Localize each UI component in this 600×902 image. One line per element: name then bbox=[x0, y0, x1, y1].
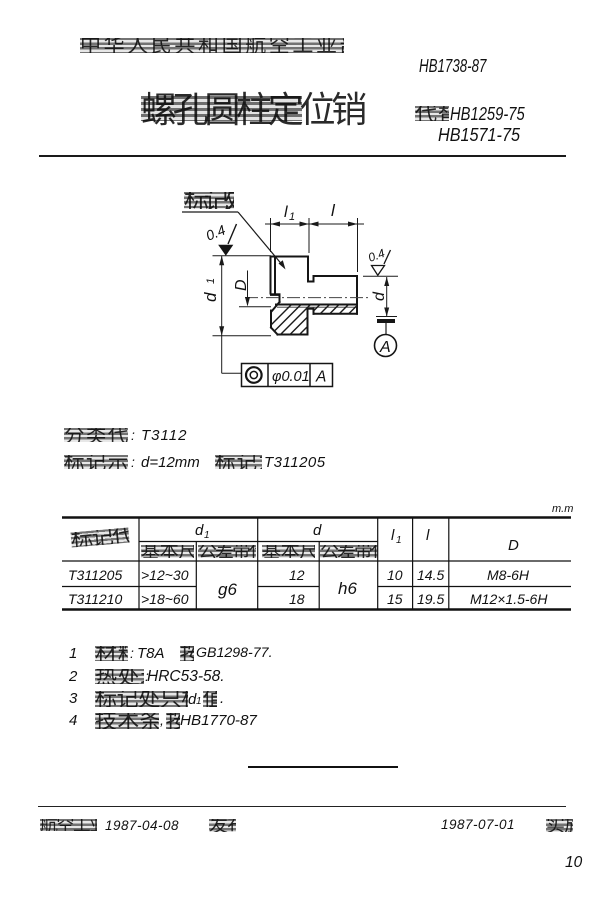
svg-text:g6: g6 bbox=[218, 580, 237, 599]
svg-text:0.4: 0.4 bbox=[366, 246, 387, 265]
svg-text:0.4: 0.4 bbox=[204, 222, 228, 244]
svg-text:l: l bbox=[426, 527, 430, 544]
svg-text:1: 1 bbox=[289, 211, 295, 223]
svg-text:d: d bbox=[195, 522, 204, 539]
svg-text:l: l bbox=[331, 201, 336, 220]
svg-text:d: d bbox=[201, 292, 220, 302]
svg-text:14.5: 14.5 bbox=[417, 567, 444, 583]
svg-text:>12~30: >12~30 bbox=[141, 567, 189, 583]
svg-text:A: A bbox=[379, 339, 391, 356]
svg-text:D: D bbox=[508, 537, 519, 554]
svg-text:1: 1 bbox=[204, 530, 210, 541]
svg-text:l: l bbox=[391, 527, 395, 544]
svg-text:T311205: T311205 bbox=[68, 567, 122, 583]
svg-text:d: d bbox=[313, 522, 322, 539]
svg-text:M12×1.5-6H: M12×1.5-6H bbox=[470, 591, 548, 607]
svg-text:M8-6H: M8-6H bbox=[487, 567, 530, 583]
svg-text:10: 10 bbox=[387, 567, 403, 583]
svg-text:D: D bbox=[233, 279, 250, 291]
svg-text:d: d bbox=[371, 291, 388, 301]
svg-text:15: 15 bbox=[387, 591, 403, 607]
svg-text:h6: h6 bbox=[338, 579, 357, 598]
svg-text:A: A bbox=[315, 369, 326, 386]
svg-text:>18~60: >18~60 bbox=[141, 591, 189, 607]
svg-text:φ0.01: φ0.01 bbox=[272, 369, 310, 385]
svg-text:1: 1 bbox=[396, 535, 402, 546]
svg-text:19.5: 19.5 bbox=[417, 591, 444, 607]
svg-text:18: 18 bbox=[289, 591, 305, 607]
svg-text:l: l bbox=[284, 204, 288, 221]
svg-text:T311210: T311210 bbox=[68, 591, 122, 607]
svg-text:12: 12 bbox=[289, 567, 305, 583]
svg-text:1: 1 bbox=[205, 278, 217, 284]
